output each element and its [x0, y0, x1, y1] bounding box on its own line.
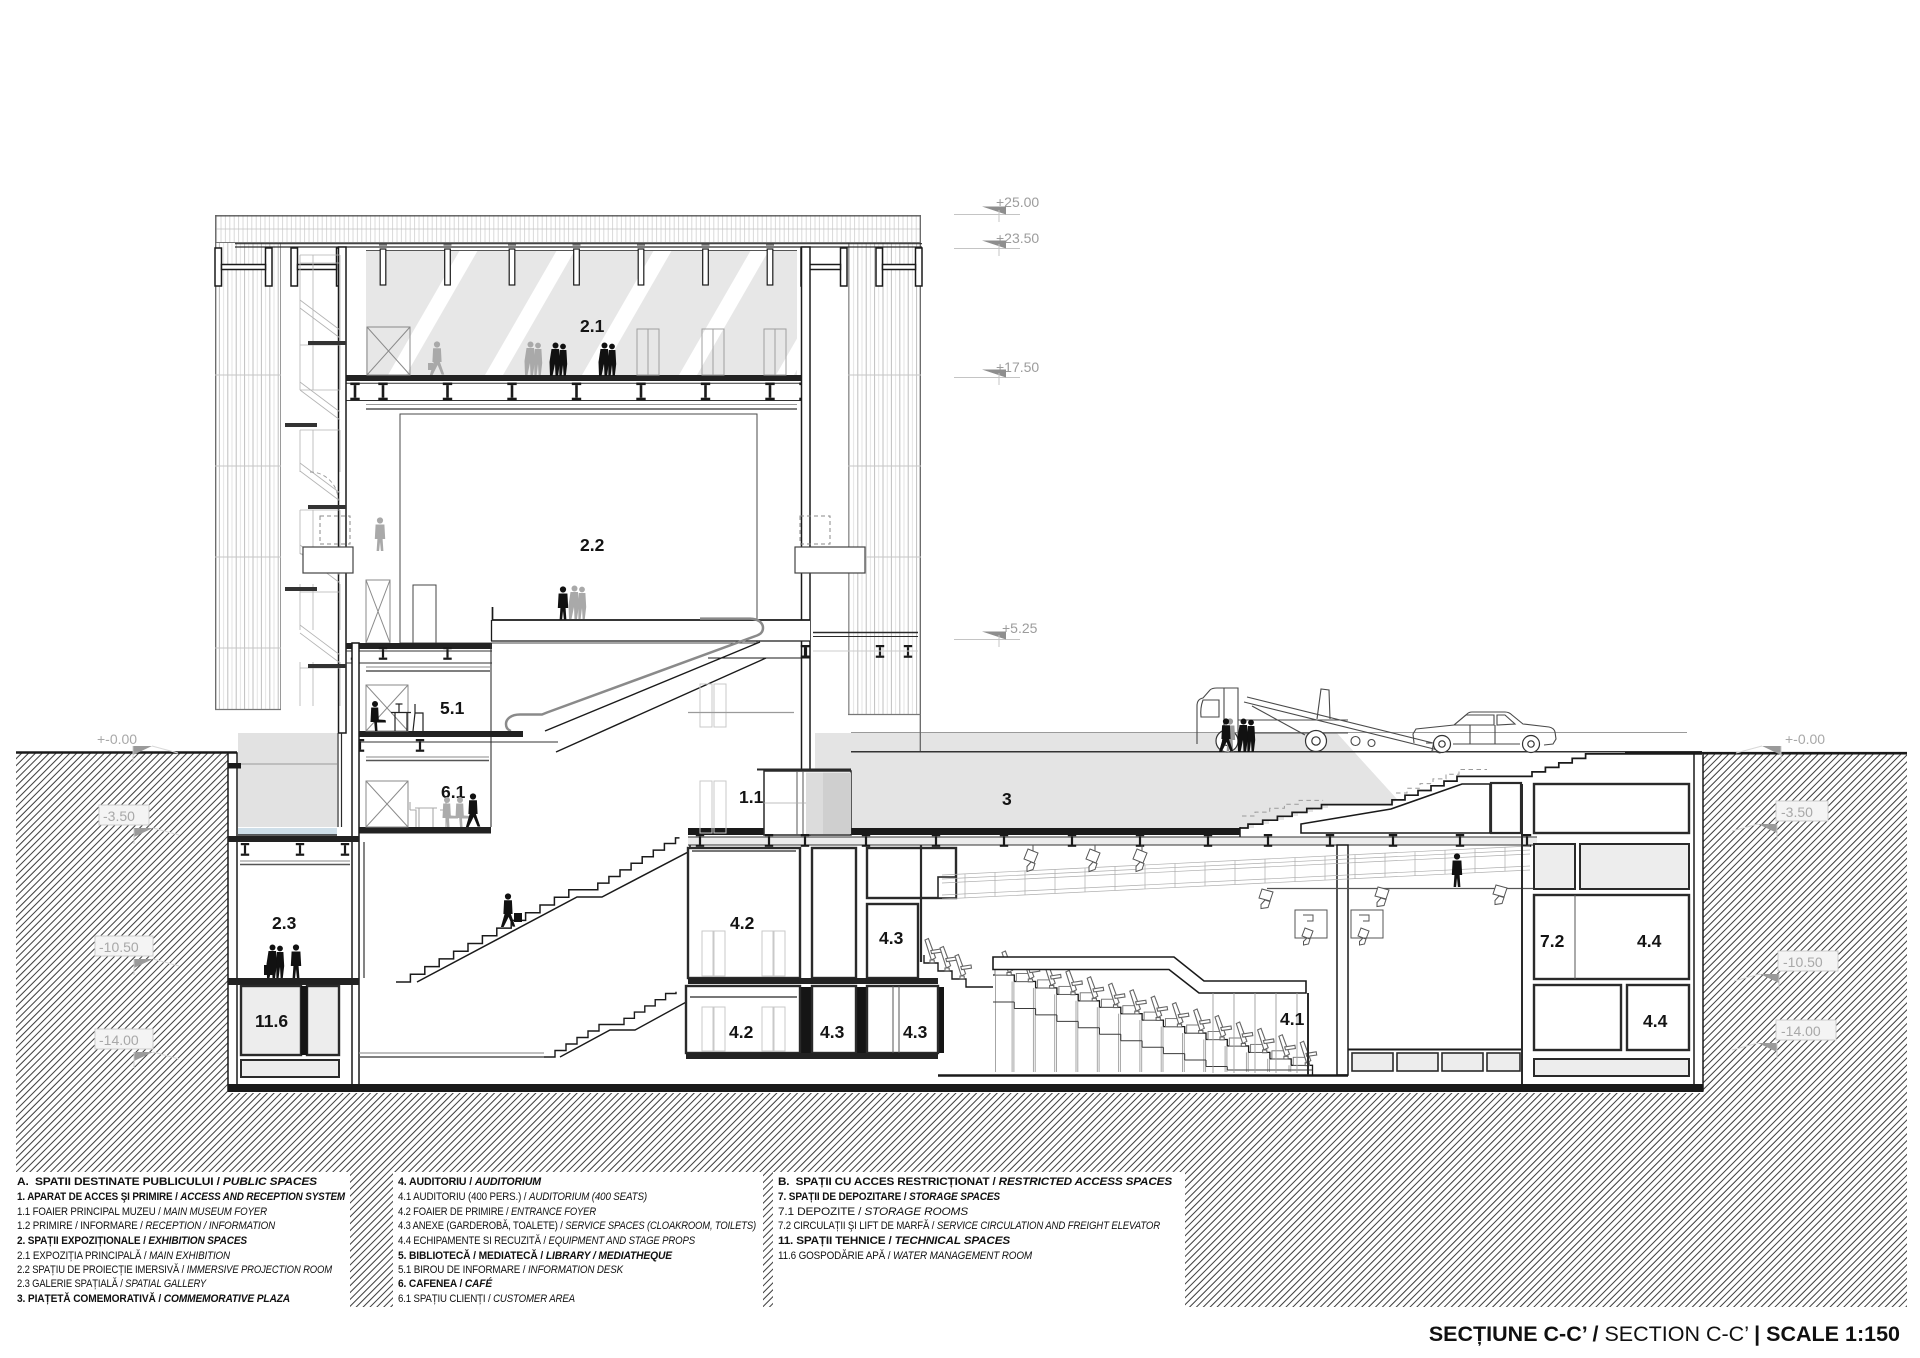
svg-text:4.1: 4.1 [1280, 1009, 1305, 1029]
svg-text:7.2 CIRCULAȚII ŞI LIFT DE MARF: 7.2 CIRCULAȚII ŞI LIFT DE MARFĂ / SERVIC… [778, 1219, 1160, 1232]
svg-text:7.1 DEPOZITE / STORAGE ROOMS: 7.1 DEPOZITE / STORAGE ROOMS [778, 1206, 968, 1218]
svg-text:+-0.00: +-0.00 [97, 731, 137, 747]
svg-text:4.4: 4.4 [1643, 1011, 1668, 1031]
svg-text:4.3: 4.3 [879, 928, 904, 948]
svg-text:5.1: 5.1 [440, 698, 465, 718]
svg-text:4.1 AUDITORIU (400 PERS.) / AU: 4.1 AUDITORIU (400 PERS.) / AUDITORIUM (… [398, 1191, 647, 1203]
svg-text:6. CAFENEA / CAFÉ: 6. CAFENEA / CAFÉ [398, 1277, 493, 1290]
svg-text:4.2: 4.2 [730, 913, 755, 933]
svg-text:4.4 ECHIPAMENTE SI RECUZITĂ /: 4.4 ECHIPAMENTE SI RECUZITĂ / EQUIPMENT … [398, 1234, 695, 1247]
svg-text:2.1: 2.1 [580, 316, 605, 336]
svg-text:+-0.00: +-0.00 [1785, 731, 1825, 747]
svg-text:3. PIAȚETĂ COMEMORATIVĂ / COMM: 3. PIAȚETĂ COMEMORATIVĂ / COMMEMORATIVE … [17, 1292, 290, 1305]
svg-text:1. APARAT DE ACCES ŞI PRIMIRE: 1. APARAT DE ACCES ŞI PRIMIRE / ACCESS A… [17, 1191, 346, 1203]
svg-text:5.1 BIROU DE INFORMARE / INFOR: 5.1 BIROU DE INFORMARE / INFORMATION DES… [398, 1264, 624, 1276]
svg-text:11.6: 11.6 [255, 1011, 288, 1031]
svg-text:2.2 SPAȚIU DE PROIECȚIE IMERSI: 2.2 SPAȚIU DE PROIECȚIE IMERSIVĂ / IMMER… [17, 1263, 332, 1276]
svg-text:2. SPAȚII EXPOZIȚIONALE / EXHI: 2. SPAȚII EXPOZIȚIONALE / EXHIBITION SPA… [17, 1235, 248, 1247]
svg-text:-14.00: -14.00 [99, 1032, 139, 1048]
svg-text:2.1 EXPOZIȚIA PRINCIPALĂ / MAI: 2.1 EXPOZIȚIA PRINCIPALĂ / MAIN EXHIBITI… [17, 1249, 230, 1262]
svg-text:11.6 GOSPODĂRIE APĂ / WATER MA: 11.6 GOSPODĂRIE APĂ / WATER MANAGEMENT R… [778, 1249, 1032, 1262]
svg-text:+5.25: +5.25 [1002, 620, 1038, 636]
svg-text:-10.50: -10.50 [1783, 954, 1823, 970]
svg-text:6.1 SPAȚIU CLIENȚI / CUSTOMER: 6.1 SPAȚIU CLIENȚI / CUSTOMER AREA [398, 1293, 575, 1305]
svg-text:3: 3 [1002, 789, 1012, 809]
svg-text:4.3 ANEXE (GARDEROBĂ, TOALETE): 4.3 ANEXE (GARDEROBĂ, TOALETE) / SERVICE… [398, 1219, 756, 1232]
svg-text:SECȚIUNE C-C’ / SECTION C-C’ |: SECȚIUNE C-C’ / SECTION C-C’ | SCALE 1:1… [1429, 1322, 1900, 1346]
svg-text:5. BIBLIOTECĂ / MEDIATECĂ / LI: 5. BIBLIOTECĂ / MEDIATECĂ / LIBRARY / ME… [398, 1249, 673, 1262]
svg-text:1.2 PRIMIRE / INFORMARE / RECE: 1.2 PRIMIRE / INFORMARE / RECEPTION / IN… [17, 1220, 275, 1232]
svg-text:-3.50: -3.50 [103, 808, 135, 824]
svg-text:A. SPATII DESTINATE PUBLICULU: A. SPATII DESTINATE PUBLICULUI / PUBLIC … [17, 1176, 318, 1188]
svg-text:7.2: 7.2 [1540, 931, 1565, 951]
svg-text:7. SPAȚII DE DEPOZITARE / STOR: 7. SPAȚII DE DEPOZITARE / STORAGE SPACES [778, 1191, 1001, 1203]
svg-text:4.3: 4.3 [820, 1022, 845, 1042]
svg-text:-10.50: -10.50 [99, 939, 139, 955]
svg-text:-14.00: -14.00 [1781, 1023, 1821, 1039]
svg-text:2.3: 2.3 [272, 913, 297, 933]
svg-text:4.2 FOAIER DE PRIMIRE / ENTRAN: 4.2 FOAIER DE PRIMIRE / ENTRANCE FOYER [398, 1206, 596, 1218]
svg-text:4. AUDITORIU / AUDITORIUM: 4. AUDITORIU / AUDITORIUM [398, 1176, 542, 1188]
svg-text:4.3: 4.3 [903, 1022, 928, 1042]
svg-text:2.3 GALERIE SPAȚIALĂ / SPATIAL: 2.3 GALERIE SPAȚIALĂ / SPATIAL GALLERY [17, 1277, 207, 1290]
svg-text:-3.50: -3.50 [1781, 804, 1813, 820]
svg-text:2.2: 2.2 [580, 535, 605, 555]
svg-text:11. SPAȚII TEHNICE / TECHNICAL: 11. SPAȚII TEHNICE / TECHNICAL SPACES [778, 1235, 1011, 1247]
svg-text:1.1 FOAIER PRINCIPAL MUZEU / M: 1.1 FOAIER PRINCIPAL MUZEU / MAIN MUSEUM… [17, 1206, 267, 1218]
svg-text:B. SPAȚII CU ACCES RESTRICȚIO: B. SPAȚII CU ACCES RESTRICȚIONAT / RESTR… [778, 1176, 1173, 1188]
svg-text:4.2: 4.2 [729, 1022, 754, 1042]
svg-text:1.1: 1.1 [739, 787, 764, 807]
svg-text:4.4: 4.4 [1637, 931, 1662, 951]
